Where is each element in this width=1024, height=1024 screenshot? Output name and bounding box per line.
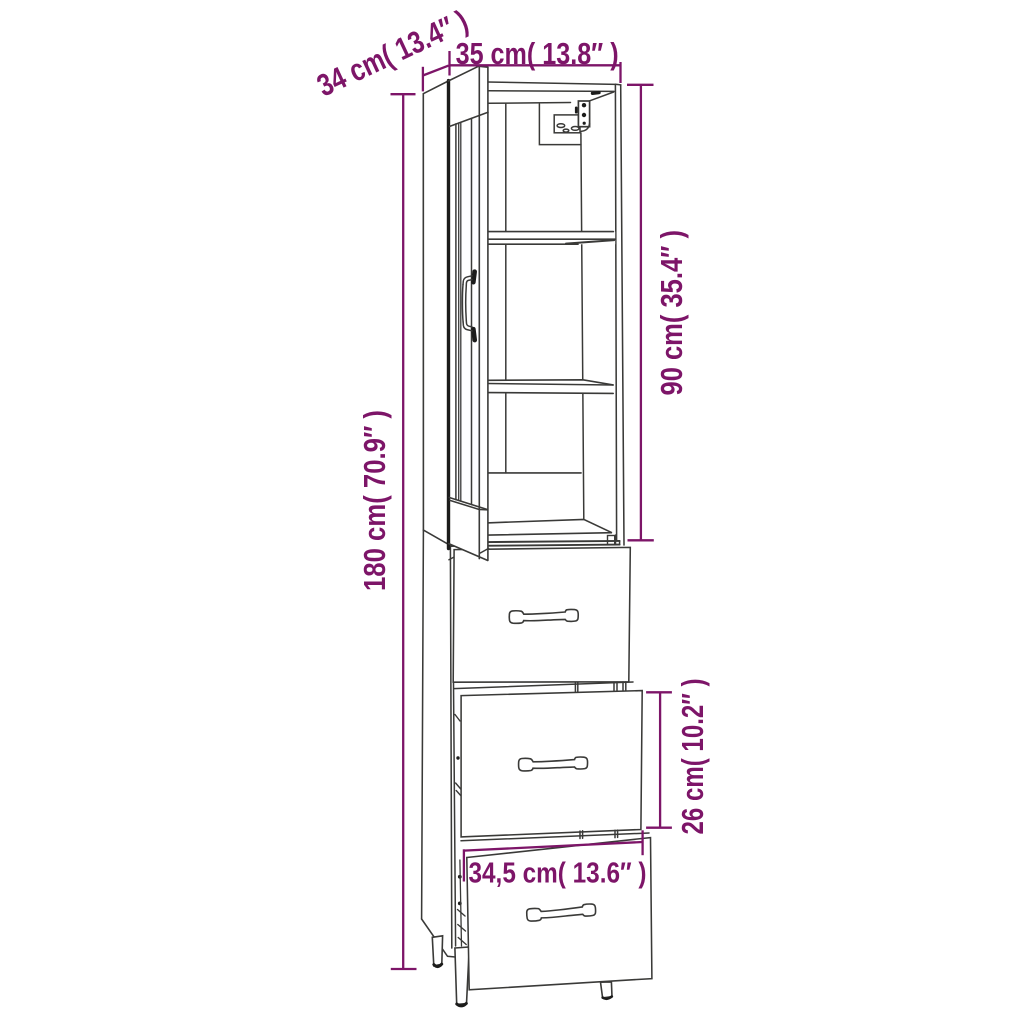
svg-text:26 cm( 10.2″ ): 26 cm( 10.2″ ) xyxy=(675,679,710,835)
svg-text:90 cm( 35.4″ ): 90 cm( 35.4″ ) xyxy=(654,230,689,396)
svg-text:35 cm( 13.8″ ): 35 cm( 13.8″ ) xyxy=(456,36,619,71)
svg-text:34,5 cm( 13.6″ ): 34,5 cm( 13.6″ ) xyxy=(469,858,647,890)
svg-text:180 cm( 70.9″ ): 180 cm( 70.9″ ) xyxy=(357,410,392,591)
